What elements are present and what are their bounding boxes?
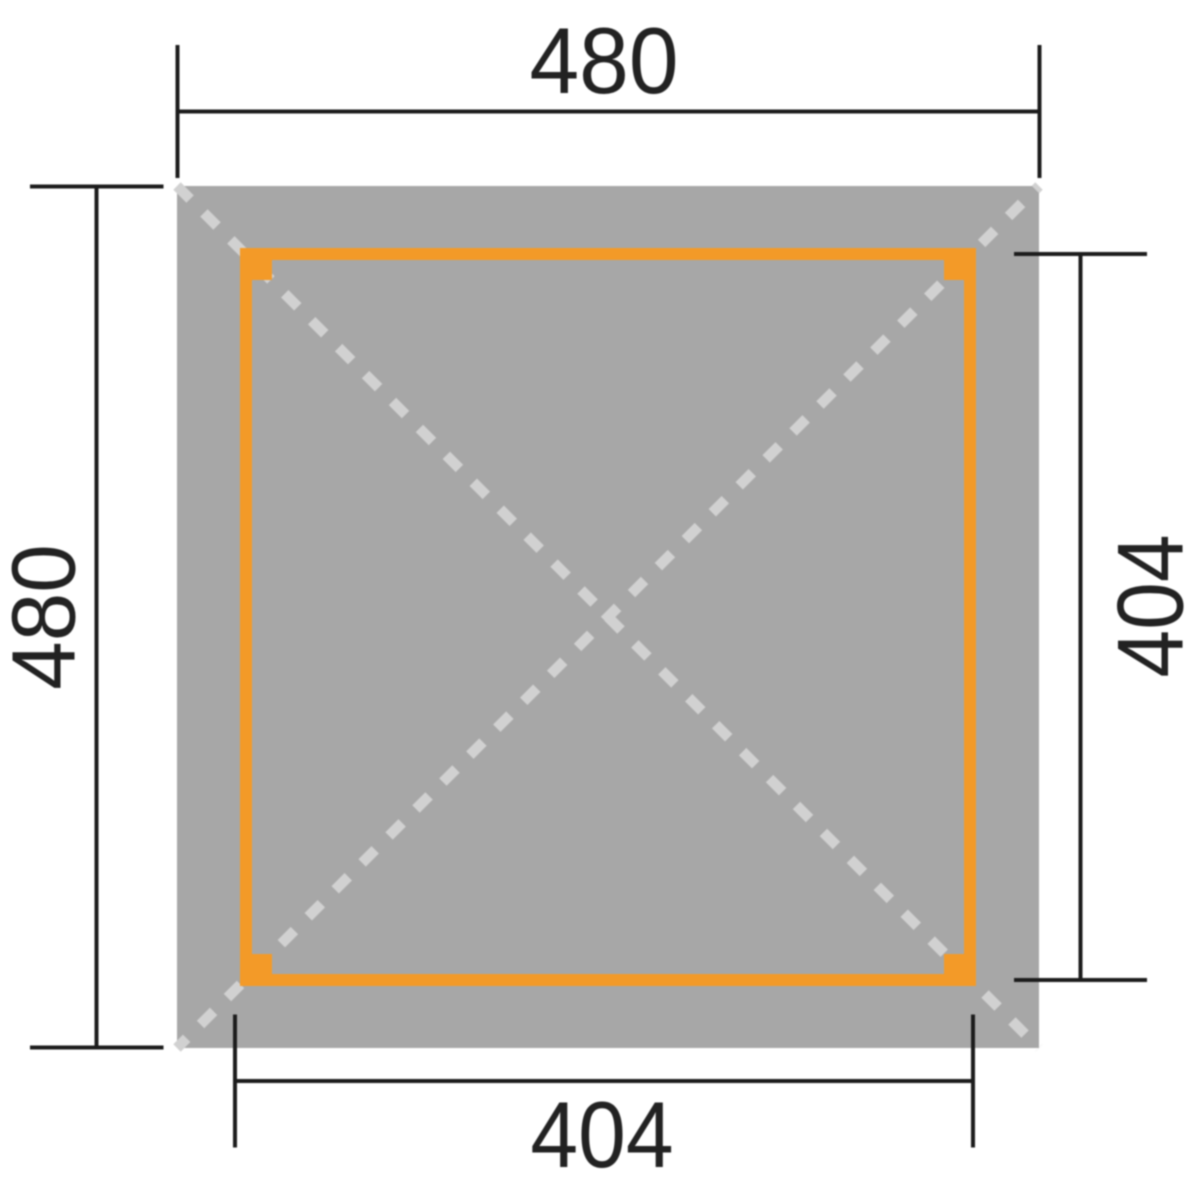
svg-text:480: 480 (530, 9, 679, 114)
svg-text:480: 480 (0, 544, 94, 690)
svg-text:404: 404 (530, 1083, 673, 1187)
svg-text:404: 404 (1098, 534, 1200, 677)
